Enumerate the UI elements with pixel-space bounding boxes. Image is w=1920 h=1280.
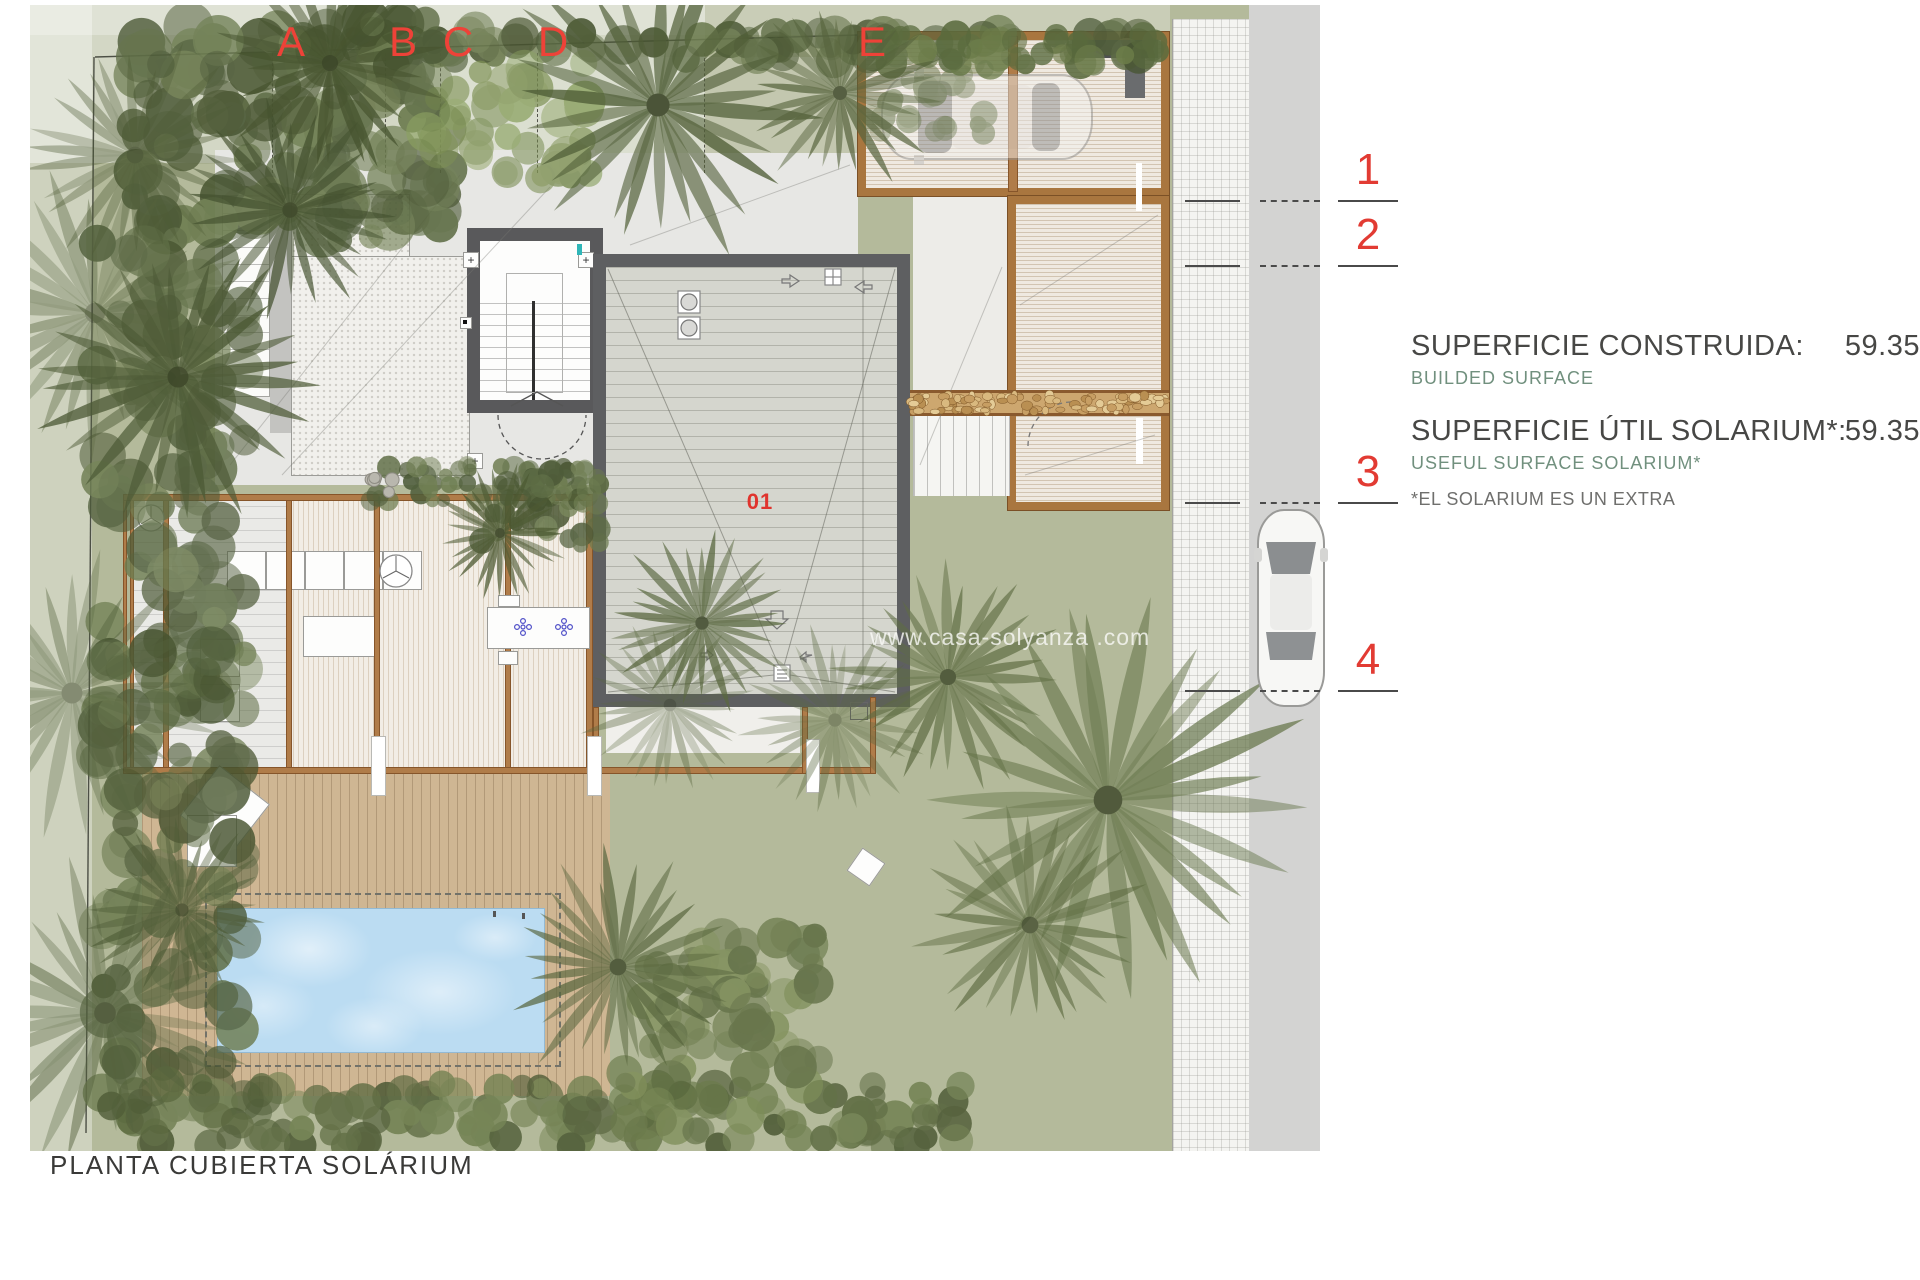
driveway-pergola [1008,196,1169,510]
grid-tick-segment [1185,690,1240,692]
door-slot [1136,163,1142,211]
grid-tick-segment [1260,502,1320,504]
watermark: www.casa-solyanza .com [870,624,1150,651]
pergola-beam [374,494,380,774]
grid-number: 4 [1356,638,1380,682]
grid-tick-segment [1260,265,1320,267]
grid-tick-line [704,53,705,173]
legend-label-solarium: SUPERFICIE ÚTIL SOLARIUM*: [1411,415,1847,448]
side-table [200,684,240,722]
pergola-beam [286,494,292,774]
grid-tick-segment [1338,502,1398,504]
grid-tick-segment [1338,265,1398,267]
lounger [383,551,422,590]
grid-letter: A [277,21,305,63]
stair-flight-outline [506,273,563,393]
carport-wall [1125,58,1145,98]
legend-sub-built: BUILDED SURFACE [1411,368,1594,389]
door-slot [1136,418,1143,464]
daybed [303,616,375,657]
lounger [305,551,344,590]
grid-tick-segment [1260,200,1320,202]
grid-number: 2 [1356,213,1380,257]
legend-note: *EL SOLARIUM ES UN EXTRA [1411,489,1675,510]
pool-fitting [493,911,496,917]
legend-value-built: 59.35 [1845,330,1920,363]
legend-label-built: SUPERFICIE CONSTRUIDA: [1411,330,1804,363]
unit-number-label: 01 [730,489,790,515]
grid-tick-segment [1338,200,1398,202]
pergola-beam [123,494,127,774]
grid-tick-segment [1260,690,1320,692]
chair [498,595,520,607]
grid-tick-line [385,53,386,173]
wall-joint-marker: + [467,453,483,469]
sidewalk [1172,19,1250,1151]
porch-strip [606,707,800,753]
wash-overlay-top-strip [30,5,1170,35]
grid-number: 1 [1356,148,1380,192]
solarium-deck [593,254,910,707]
pergola-beam [163,494,169,774]
pergola-beam [130,494,134,774]
plan-title: PLANTA CUBIERTA SOLÁRIUM [50,1150,474,1181]
wall-point-marker [460,317,472,329]
grid-tick-segment [1185,265,1240,267]
exterior-stairs [913,416,1010,496]
site-plan: + + + 01 [30,5,1320,1151]
swimming-pool [217,908,545,1053]
pergola-post [371,736,386,796]
paving-above-deck [595,153,858,257]
grid-number: 3 [1356,450,1380,494]
grid-letter: E [858,21,886,63]
side-steps [222,195,270,397]
lawn-lounger-rotated [847,848,886,887]
lounger [227,551,266,590]
grid-letter: D [538,21,568,63]
legend-value-solarium: 59.35 [1845,415,1920,448]
grid-tick-segment [1338,690,1398,692]
pergola-beam-top [123,494,593,501]
parked-car-road [1254,508,1328,708]
dining-table [487,607,590,649]
terrace-wall-band [270,195,292,433]
legend-sub-solarium: USEFUL SURFACE SOLARIUM* [1411,453,1701,474]
survey-mark [577,244,582,255]
wall-joint-marker: + [463,252,479,268]
pergola-terrace-left [134,494,288,773]
parked-car-carport [880,69,1094,165]
grid-letter: C [443,21,473,63]
side-table [200,639,240,677]
grid-tick-line [272,53,273,173]
pergola-post [806,739,820,793]
grid-tick-segment [1185,502,1240,504]
grid-letter: B [389,21,417,63]
gabion-stone-wall [905,390,1169,416]
carport-wall [1072,40,1158,58]
grid-tick-line [440,53,441,173]
lawn-marker-square [850,702,868,720]
porch-beam [870,697,876,774]
gravel-terrace-upper [292,195,409,259]
sun-lounger [187,815,237,867]
grid-tick-line [537,53,538,173]
chair [498,651,518,665]
pergola-beam-bottom [123,767,875,774]
pool-fitting [522,913,525,919]
gravel-terrace [292,257,469,475]
pergola-post [587,736,602,796]
grid-tick-segment [1185,200,1240,202]
wash-overlay-left [30,5,92,1151]
